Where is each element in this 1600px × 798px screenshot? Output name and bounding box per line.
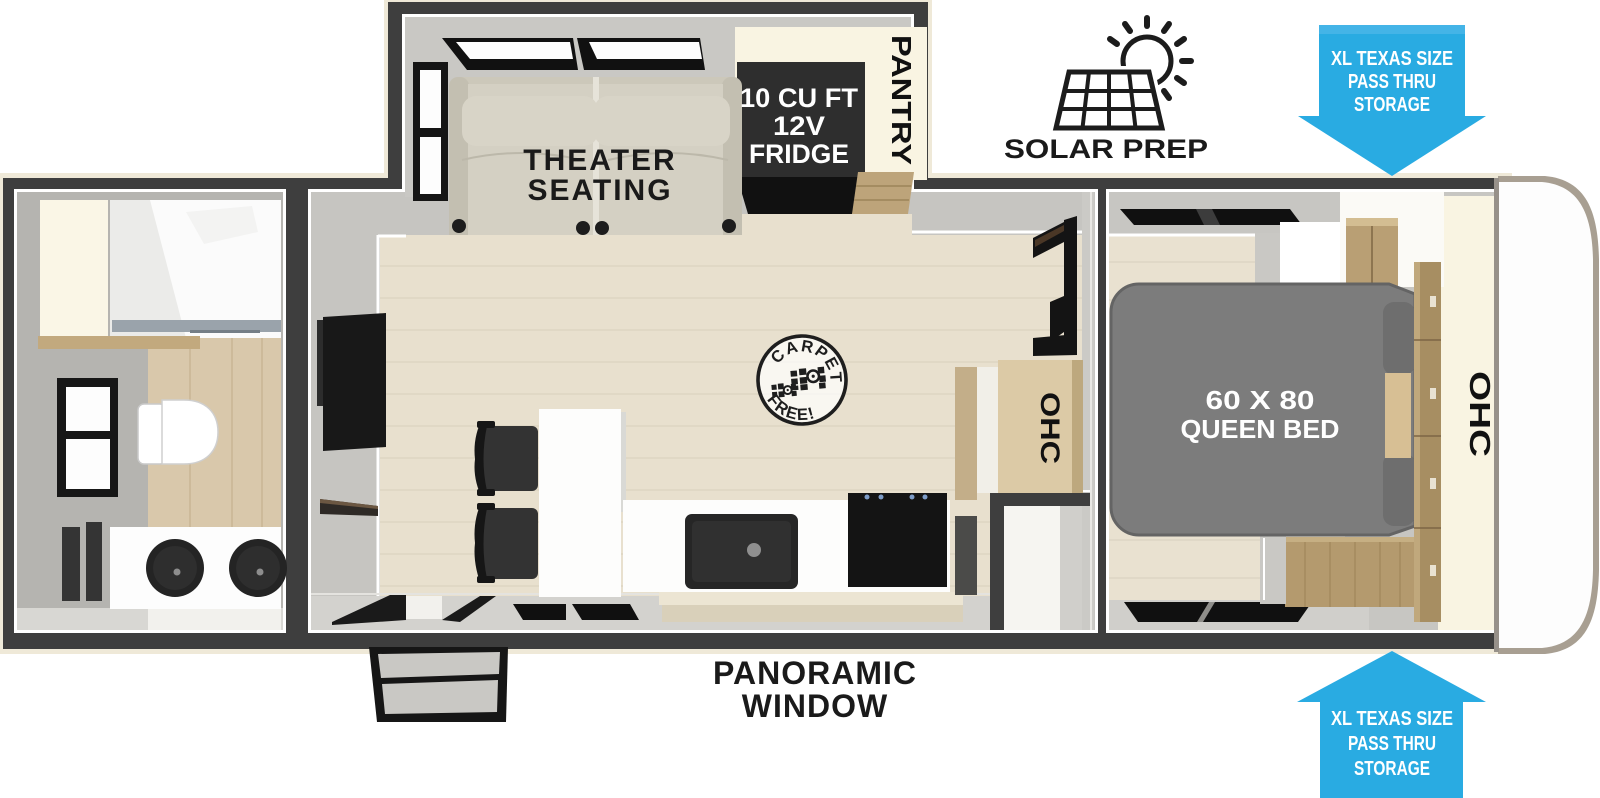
svg-text:WINDOW: WINDOW: [742, 688, 888, 724]
svg-text:10 CU FT: 10 CU FT: [740, 83, 858, 113]
svg-text:SOLAR PREP: SOLAR PREP: [1004, 134, 1208, 164]
svg-text:STORAGE: STORAGE: [1354, 758, 1430, 780]
svg-text:60 X 80: 60 X 80: [1206, 385, 1315, 415]
svg-text:12V: 12V: [773, 111, 825, 141]
svg-text:OHC: OHC: [1035, 392, 1065, 464]
svg-text:THEATER: THEATER: [523, 144, 676, 177]
svg-text:PASS THRU: PASS THRU: [1348, 71, 1436, 93]
svg-text:FRIDGE: FRIDGE: [749, 139, 849, 169]
svg-text:STORAGE: STORAGE: [1354, 94, 1430, 116]
svg-text:XL TEXAS SIZE: XL TEXAS SIZE: [1331, 708, 1453, 730]
svg-text:QUEEN BED: QUEEN BED: [1181, 414, 1340, 444]
svg-text:SEATING: SEATING: [527, 174, 672, 207]
svg-text:PANTRY: PANTRY: [886, 35, 917, 165]
svg-text:PASS THRU: PASS THRU: [1348, 733, 1436, 755]
svg-text:XL TEXAS SIZE: XL TEXAS SIZE: [1331, 48, 1453, 70]
svg-text:PANORAMIC: PANORAMIC: [713, 655, 917, 691]
svg-text:OHC: OHC: [1463, 371, 1495, 457]
